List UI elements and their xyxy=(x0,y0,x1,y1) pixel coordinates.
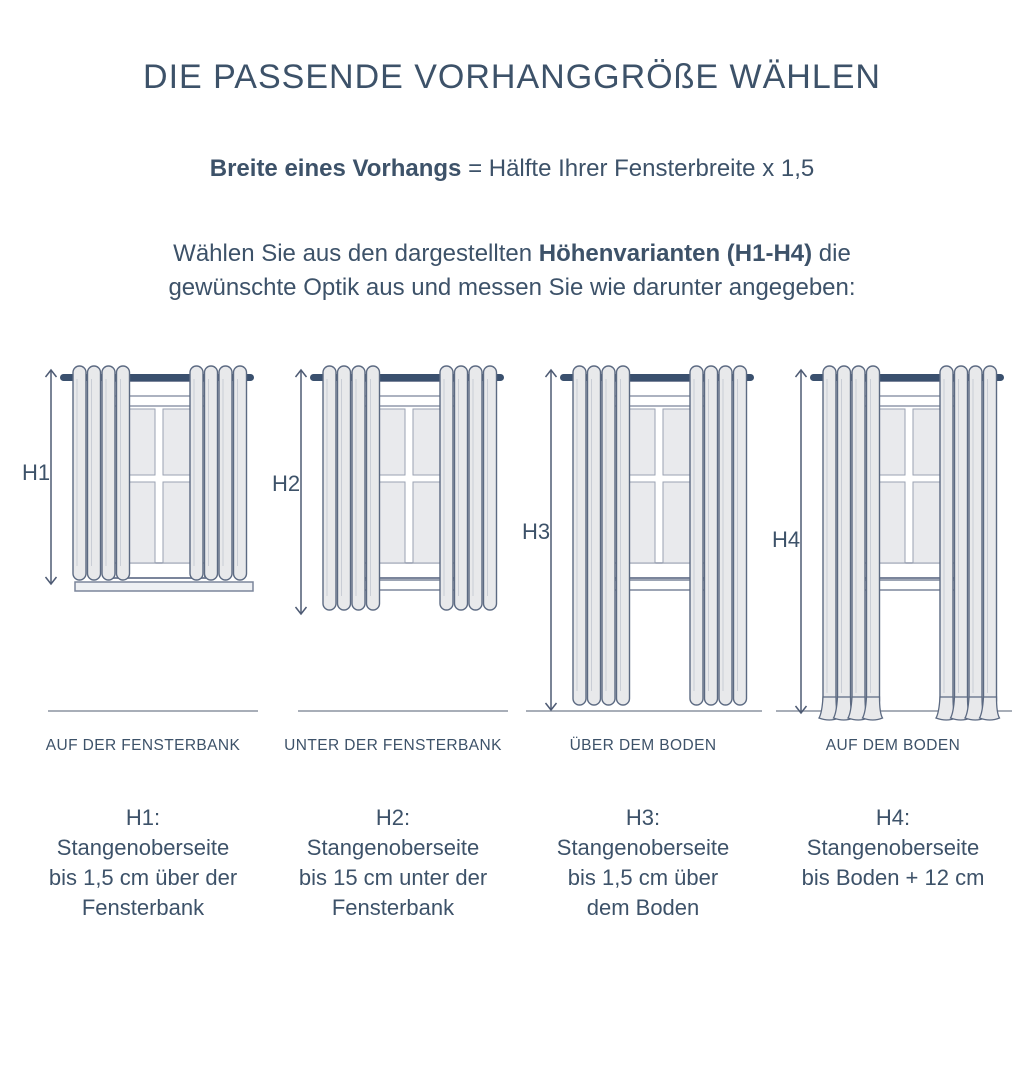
formula-rest-part: = Hälfte Ihrer Fensterbreite x 1,5 xyxy=(468,155,814,182)
variant-caption-h3: ÜBER DEM BODEN xyxy=(518,737,768,755)
height-label: H4 xyxy=(772,527,800,552)
windowsill xyxy=(75,582,253,591)
intro-bold: Höhenvarianten (H1-H4) xyxy=(539,240,812,267)
variant-h3: H3 ÜBER DEM BODEN H3: Stangenoberseite b… xyxy=(518,361,768,923)
variant-description-h4: H4: Stangenoberseite bis Boden + 12 cm xyxy=(768,803,1018,893)
variant-description-h3: H3: Stangenoberseite bis 1,5 cm über dem… xyxy=(518,803,768,923)
intro-before: Wählen Sie aus den dargestellten xyxy=(173,240,539,267)
curtain-panel-left xyxy=(323,366,380,610)
variant-h2: H2 UNTER DER FENSTERBANK H2: Stangenober… xyxy=(268,361,518,923)
formula-bold-part: Breite eines Vorhangs xyxy=(210,155,462,182)
variant-description-h2: H2: Stangenoberseite bis 15 cm unter der… xyxy=(268,803,518,923)
variant-grid: H1 AUF DER FENSTERBANK H1: Stangenoberse… xyxy=(18,361,1018,923)
page-title: DIE PASSENDE VORHANGGRÖßE WÄHLEN xyxy=(0,58,1024,97)
height-label: H3 xyxy=(522,519,550,544)
curtain-panel-left xyxy=(819,366,883,720)
curtain-diagram-h1: H1 xyxy=(18,361,268,731)
variant-description-h1: H1: Stangenoberseite bis 1,5 cm über der… xyxy=(18,803,268,923)
variant-h1: H1 AUF DER FENSTERBANK H1: Stangenoberse… xyxy=(18,361,268,923)
infographic-page: DIE PASSENDE VORHANGGRÖßE WÄHLEN Breite … xyxy=(0,58,1024,1082)
intro-text: Wählen Sie aus den dargestellten Höhenva… xyxy=(150,237,874,305)
curtain-diagram-h3: H3 xyxy=(518,361,768,731)
curtain-panel-right xyxy=(190,366,247,580)
width-formula: Breite eines Vorhangs = Hälfte Ihrer Fen… xyxy=(0,155,1024,183)
height-label: H2 xyxy=(272,471,300,496)
variant-h4: H4 AUF DEM BODEN H4: Stangenoberseite bi… xyxy=(768,361,1018,923)
curtain-panel-left xyxy=(573,366,630,705)
curtain-diagram-h4: H4 xyxy=(768,361,1018,731)
variant-caption-h1: AUF DER FENSTERBANK xyxy=(18,737,268,755)
curtain-panel-right xyxy=(440,366,497,610)
curtain-panel-left xyxy=(73,366,130,580)
variant-caption-h2: UNTER DER FENSTERBANK xyxy=(268,737,518,755)
curtain-panel-right xyxy=(936,366,1000,720)
curtain-panel-right xyxy=(690,366,747,705)
curtain-diagram-h2: H2 xyxy=(268,361,518,731)
variant-caption-h4: AUF DEM BODEN xyxy=(768,737,1018,755)
height-label: H1 xyxy=(22,460,50,485)
